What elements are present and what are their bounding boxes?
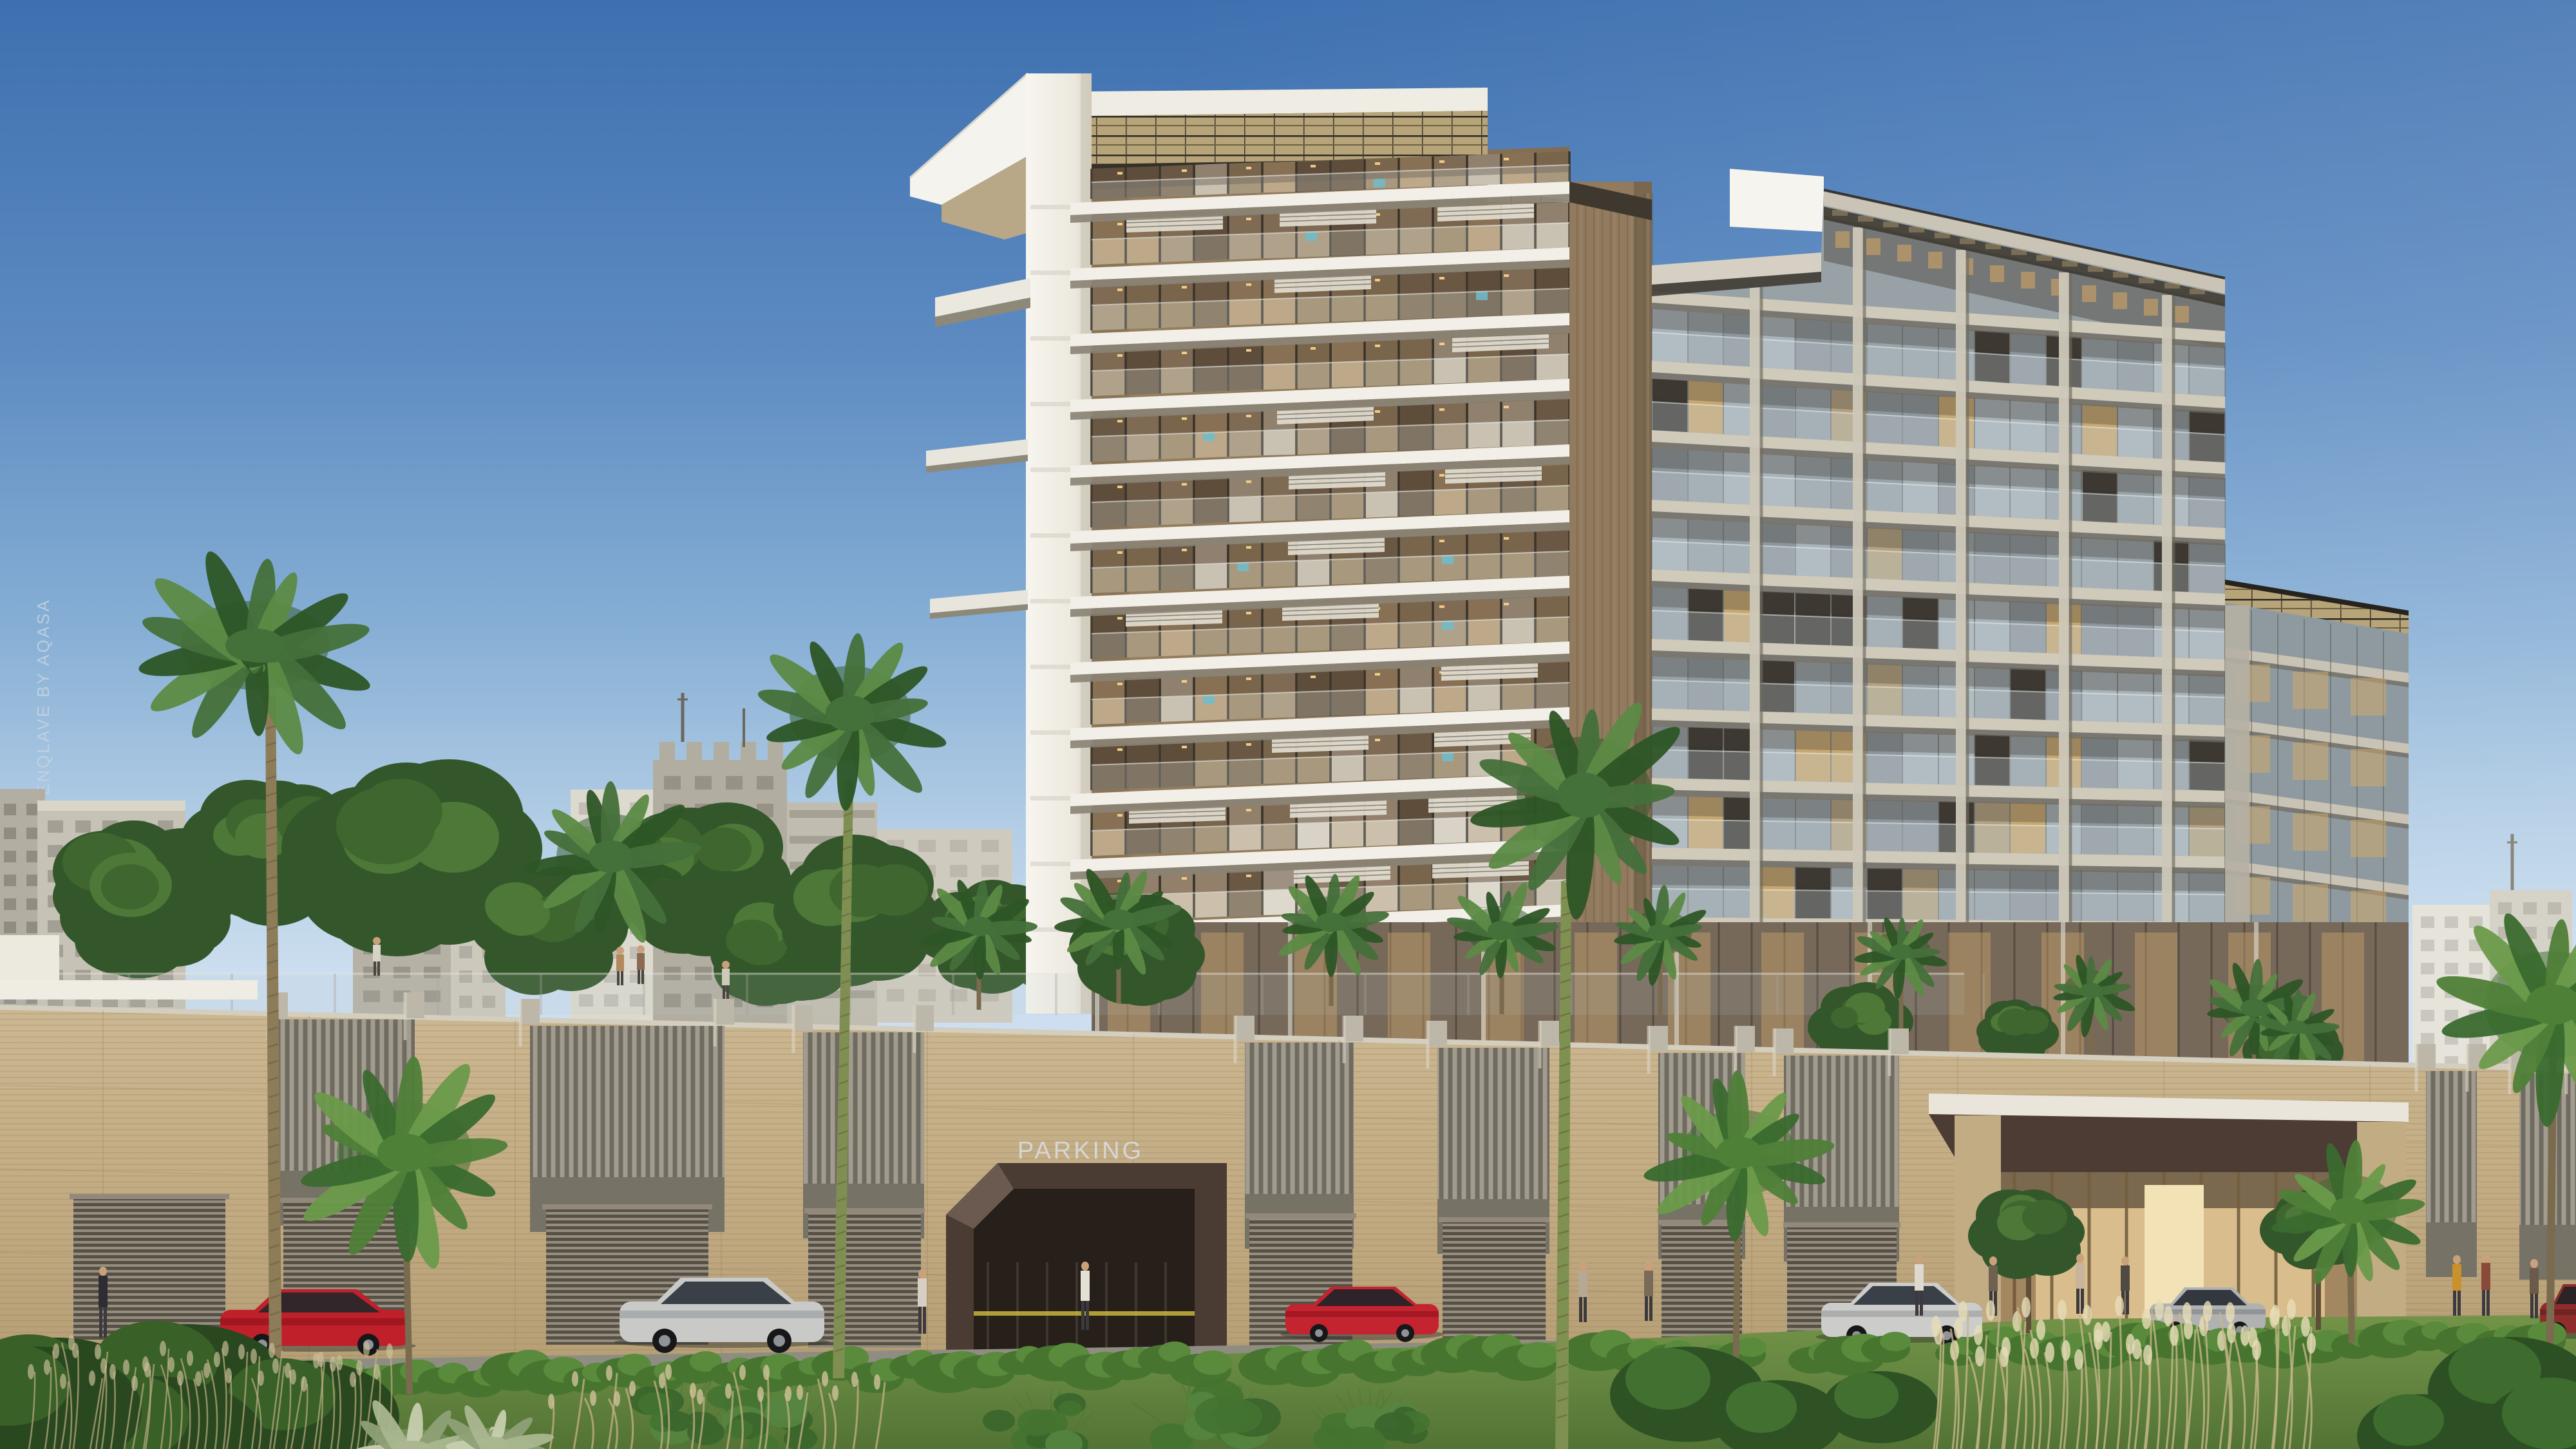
svg-text:ENQLAVE BY AQASA: ENQLAVE BY AQASA [33, 598, 53, 795]
svg-text:PARKING: PARKING [1018, 1137, 1144, 1164]
